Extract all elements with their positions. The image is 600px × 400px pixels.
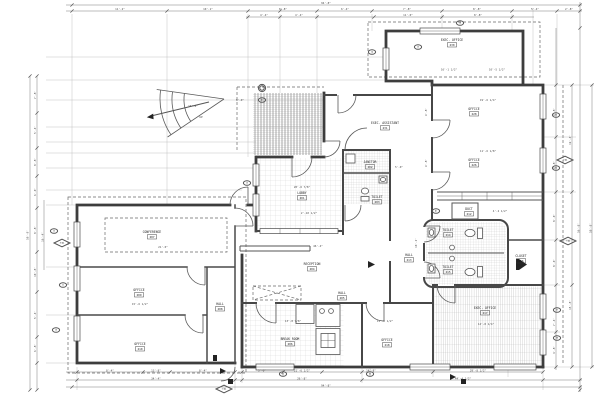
- dimension-text: UP: [199, 115, 203, 119]
- dimension-text: 26'-8": [297, 376, 307, 380]
- dimension-text: 15'-6 1/2": [132, 302, 149, 306]
- duct-chase: [452, 203, 478, 219]
- dimension-text: 58'-8": [26, 230, 30, 240]
- dimension-text: 5'-4": [33, 126, 37, 134]
- reference-tag-text: 15: [417, 47, 419, 49]
- left-wing-overhang-dashed: [68, 197, 246, 373]
- dimension-text: 8'-8": [474, 13, 482, 17]
- room-number: 208: [217, 307, 222, 311]
- dimension-text: 5'-4": [33, 311, 37, 319]
- room-label: OFFICE: [133, 288, 144, 292]
- room-label: HALL: [338, 291, 346, 295]
- dimension-text: 6'-8": [33, 344, 37, 352]
- dimension-text: 5'-0": [395, 165, 403, 169]
- reception-desk: [240, 246, 310, 251]
- dimension-text: 29'-8 1/2": [470, 368, 487, 372]
- room-label: HALL: [405, 253, 413, 257]
- dimension-text: 6'-0": [33, 188, 37, 196]
- dimension-text: 19'-4": [568, 135, 572, 145]
- room-number: 207: [149, 235, 154, 239]
- dimension-text: 7'-8": [33, 91, 37, 99]
- dimension-text: 9'-8": [424, 159, 428, 167]
- dimension-text: 6'-4": [341, 7, 349, 11]
- elevation-marker-text: 6/A4: [563, 159, 568, 162]
- room-number: 210: [137, 347, 142, 351]
- room-label: TOILET: [371, 195, 382, 199]
- room-number: 202: [367, 165, 372, 169]
- reference-tag-text: 16: [459, 23, 462, 25]
- reference-tag-text: 12: [53, 231, 55, 233]
- room-label: EXEC. OFFICE: [441, 38, 463, 42]
- room-number: 218: [384, 343, 389, 347]
- direction-arrow-icon: [368, 261, 375, 268]
- exec-office-carpet-floor: [435, 287, 542, 366]
- dimension-text: 10'-5 1/2": [489, 68, 506, 72]
- dimension-text: 11'-2": [115, 7, 125, 11]
- dimension-text: 10'-2": [414, 238, 418, 248]
- dimension-text: 8'-8": [473, 7, 481, 11]
- room-number: 203: [374, 200, 379, 204]
- room-number: 231: [382, 126, 387, 130]
- dimension-text: 58'-8": [589, 223, 593, 233]
- dimension-text: 8'-0": [236, 98, 244, 102]
- dimension-text: 4'-4": [260, 13, 268, 17]
- dimension-text: 94'-8": [321, 1, 331, 5]
- dimension-text: 8'-0": [552, 214, 556, 222]
- reference-tag-text: 02: [282, 374, 284, 376]
- dimension-text: 16'-4": [41, 232, 45, 242]
- room-number: 216: [518, 259, 523, 263]
- room-label: EXEC. ASSISTANT: [371, 121, 399, 125]
- reference-tag-text: 10: [55, 330, 58, 332]
- dimension-text: 16'-8": [188, 104, 198, 108]
- dimension-text: 20'-6 7/8": [294, 185, 311, 189]
- room-number: 212: [466, 212, 471, 216]
- room-label: OFFICE: [381, 338, 392, 342]
- dimension-text: 15'-8": [568, 300, 572, 310]
- reference-tag-text: 08: [556, 338, 559, 340]
- room-number: 215: [445, 270, 450, 274]
- room-label: TOILET: [442, 265, 453, 269]
- dimension-text: 21'-6 1/2": [294, 368, 311, 372]
- room-label: RECEPTION: [304, 262, 321, 266]
- reference-tag-text: 14: [371, 52, 374, 54]
- room-number: 209: [136, 293, 141, 297]
- reference-tag-text: 05: [555, 115, 557, 117]
- room-label: OFFICE: [134, 342, 145, 346]
- room-label: BREAK ROOM: [281, 337, 300, 341]
- room-number: 204: [309, 267, 314, 271]
- room-label: JANITOR: [363, 160, 376, 164]
- reference-tag-text: AC: [435, 210, 437, 213]
- room-number: 217: [482, 311, 487, 315]
- dimension-text: 9'-8": [424, 108, 428, 116]
- reference-tag-text: 11: [62, 285, 65, 287]
- room-number: 228: [471, 112, 476, 116]
- dimension-text: 8'-4": [106, 368, 114, 372]
- elevation-marker-text: 5/A4: [222, 388, 227, 391]
- dimension-text: 11'-0": [403, 13, 413, 17]
- dimension-text: 21'-0": [158, 245, 168, 249]
- room-label: DUCT: [465, 207, 473, 211]
- room-label: CONFERENCE: [143, 230, 162, 234]
- reference-tag-text: 13: [246, 183, 248, 185]
- reference-tag-text: 06: [555, 168, 558, 170]
- arrowhead-icon: [147, 114, 154, 120]
- dimension-text: 34'-4": [151, 376, 161, 380]
- dimension-text: 8'-4": [199, 368, 207, 372]
- room-label: LOBBY: [297, 191, 306, 195]
- dimension-text: 5'-0": [258, 368, 266, 372]
- dimension-text: 4'-2 1/2": [493, 209, 508, 213]
- dimension-text: 11'-6 1/8": [480, 149, 497, 153]
- room-number: 201: [299, 196, 304, 200]
- dimension-text: 8'-8": [33, 158, 37, 166]
- millwork-dashed: [253, 286, 301, 300]
- room-label: TOILET: [442, 228, 453, 232]
- dimension-text: 14'-8 1/4": [478, 322, 495, 326]
- dimension-text: 8'-0": [552, 259, 556, 267]
- dimension-text: 13'-8 7/8": [285, 319, 302, 323]
- dimension-text: 4'-8": [552, 346, 556, 354]
- stair-fan: [147, 90, 224, 138]
- reference-tag-text: 03: [369, 374, 371, 376]
- window-band: [437, 192, 543, 200]
- floor-plan-svg: EXEC. OFFICE230OFFICE228OFFICE226EXEC. A…: [0, 0, 600, 400]
- room-label: CLOSET: [515, 254, 526, 258]
- dimension-text: 13'-8": [151, 368, 161, 372]
- floor-plan-stage: EXEC. OFFICE230OFFICE228OFFICE226EXEC. A…: [0, 0, 600, 400]
- room-number: 206: [287, 342, 292, 346]
- room-label: OFFICE: [468, 158, 479, 162]
- dimension-text: 10'-1": [203, 7, 213, 11]
- dimension-text: 8'-8": [33, 226, 37, 234]
- dimension-text: 10'-8": [33, 267, 37, 277]
- room-label: HALL: [216, 302, 224, 306]
- dimension-text: 8'-8": [279, 7, 287, 11]
- column-grid-bubble-inner: [260, 86, 264, 90]
- dimension-text: 44'-4 1/2": [455, 376, 472, 380]
- dimension-text: 2'-10 1/2": [301, 211, 318, 215]
- room-label: OFFICE: [468, 107, 479, 111]
- dimension-text: 5'-4": [531, 7, 539, 11]
- elevation-marker-text: 8/A4: [60, 242, 65, 245]
- dimension-text: 94'-8": [321, 383, 331, 387]
- dimension-text: 11'-6 1/2": [377, 319, 394, 323]
- dimension-text: 56'-8": [577, 223, 581, 233]
- dimension-text: 7'-4": [552, 318, 556, 326]
- room-number: 226: [471, 163, 476, 167]
- dimension-text: 4'-4": [295, 13, 303, 17]
- dimension-text: 16'-1 1/2": [441, 68, 458, 72]
- room-number: 205: [339, 296, 344, 300]
- reference-tag-text: 07: [556, 310, 558, 312]
- dimension-text: 2'-8": [565, 7, 573, 11]
- dimension-text: 19'-6 1/4": [480, 98, 497, 102]
- room-number: 213: [406, 258, 411, 262]
- dimension-text: 7'-8": [403, 7, 411, 11]
- dimension-text: 46'-4": [313, 244, 323, 248]
- room-label: EXEC. OFFICE: [474, 306, 496, 310]
- room-number: 230: [449, 43, 454, 47]
- room-number: 214: [445, 233, 450, 237]
